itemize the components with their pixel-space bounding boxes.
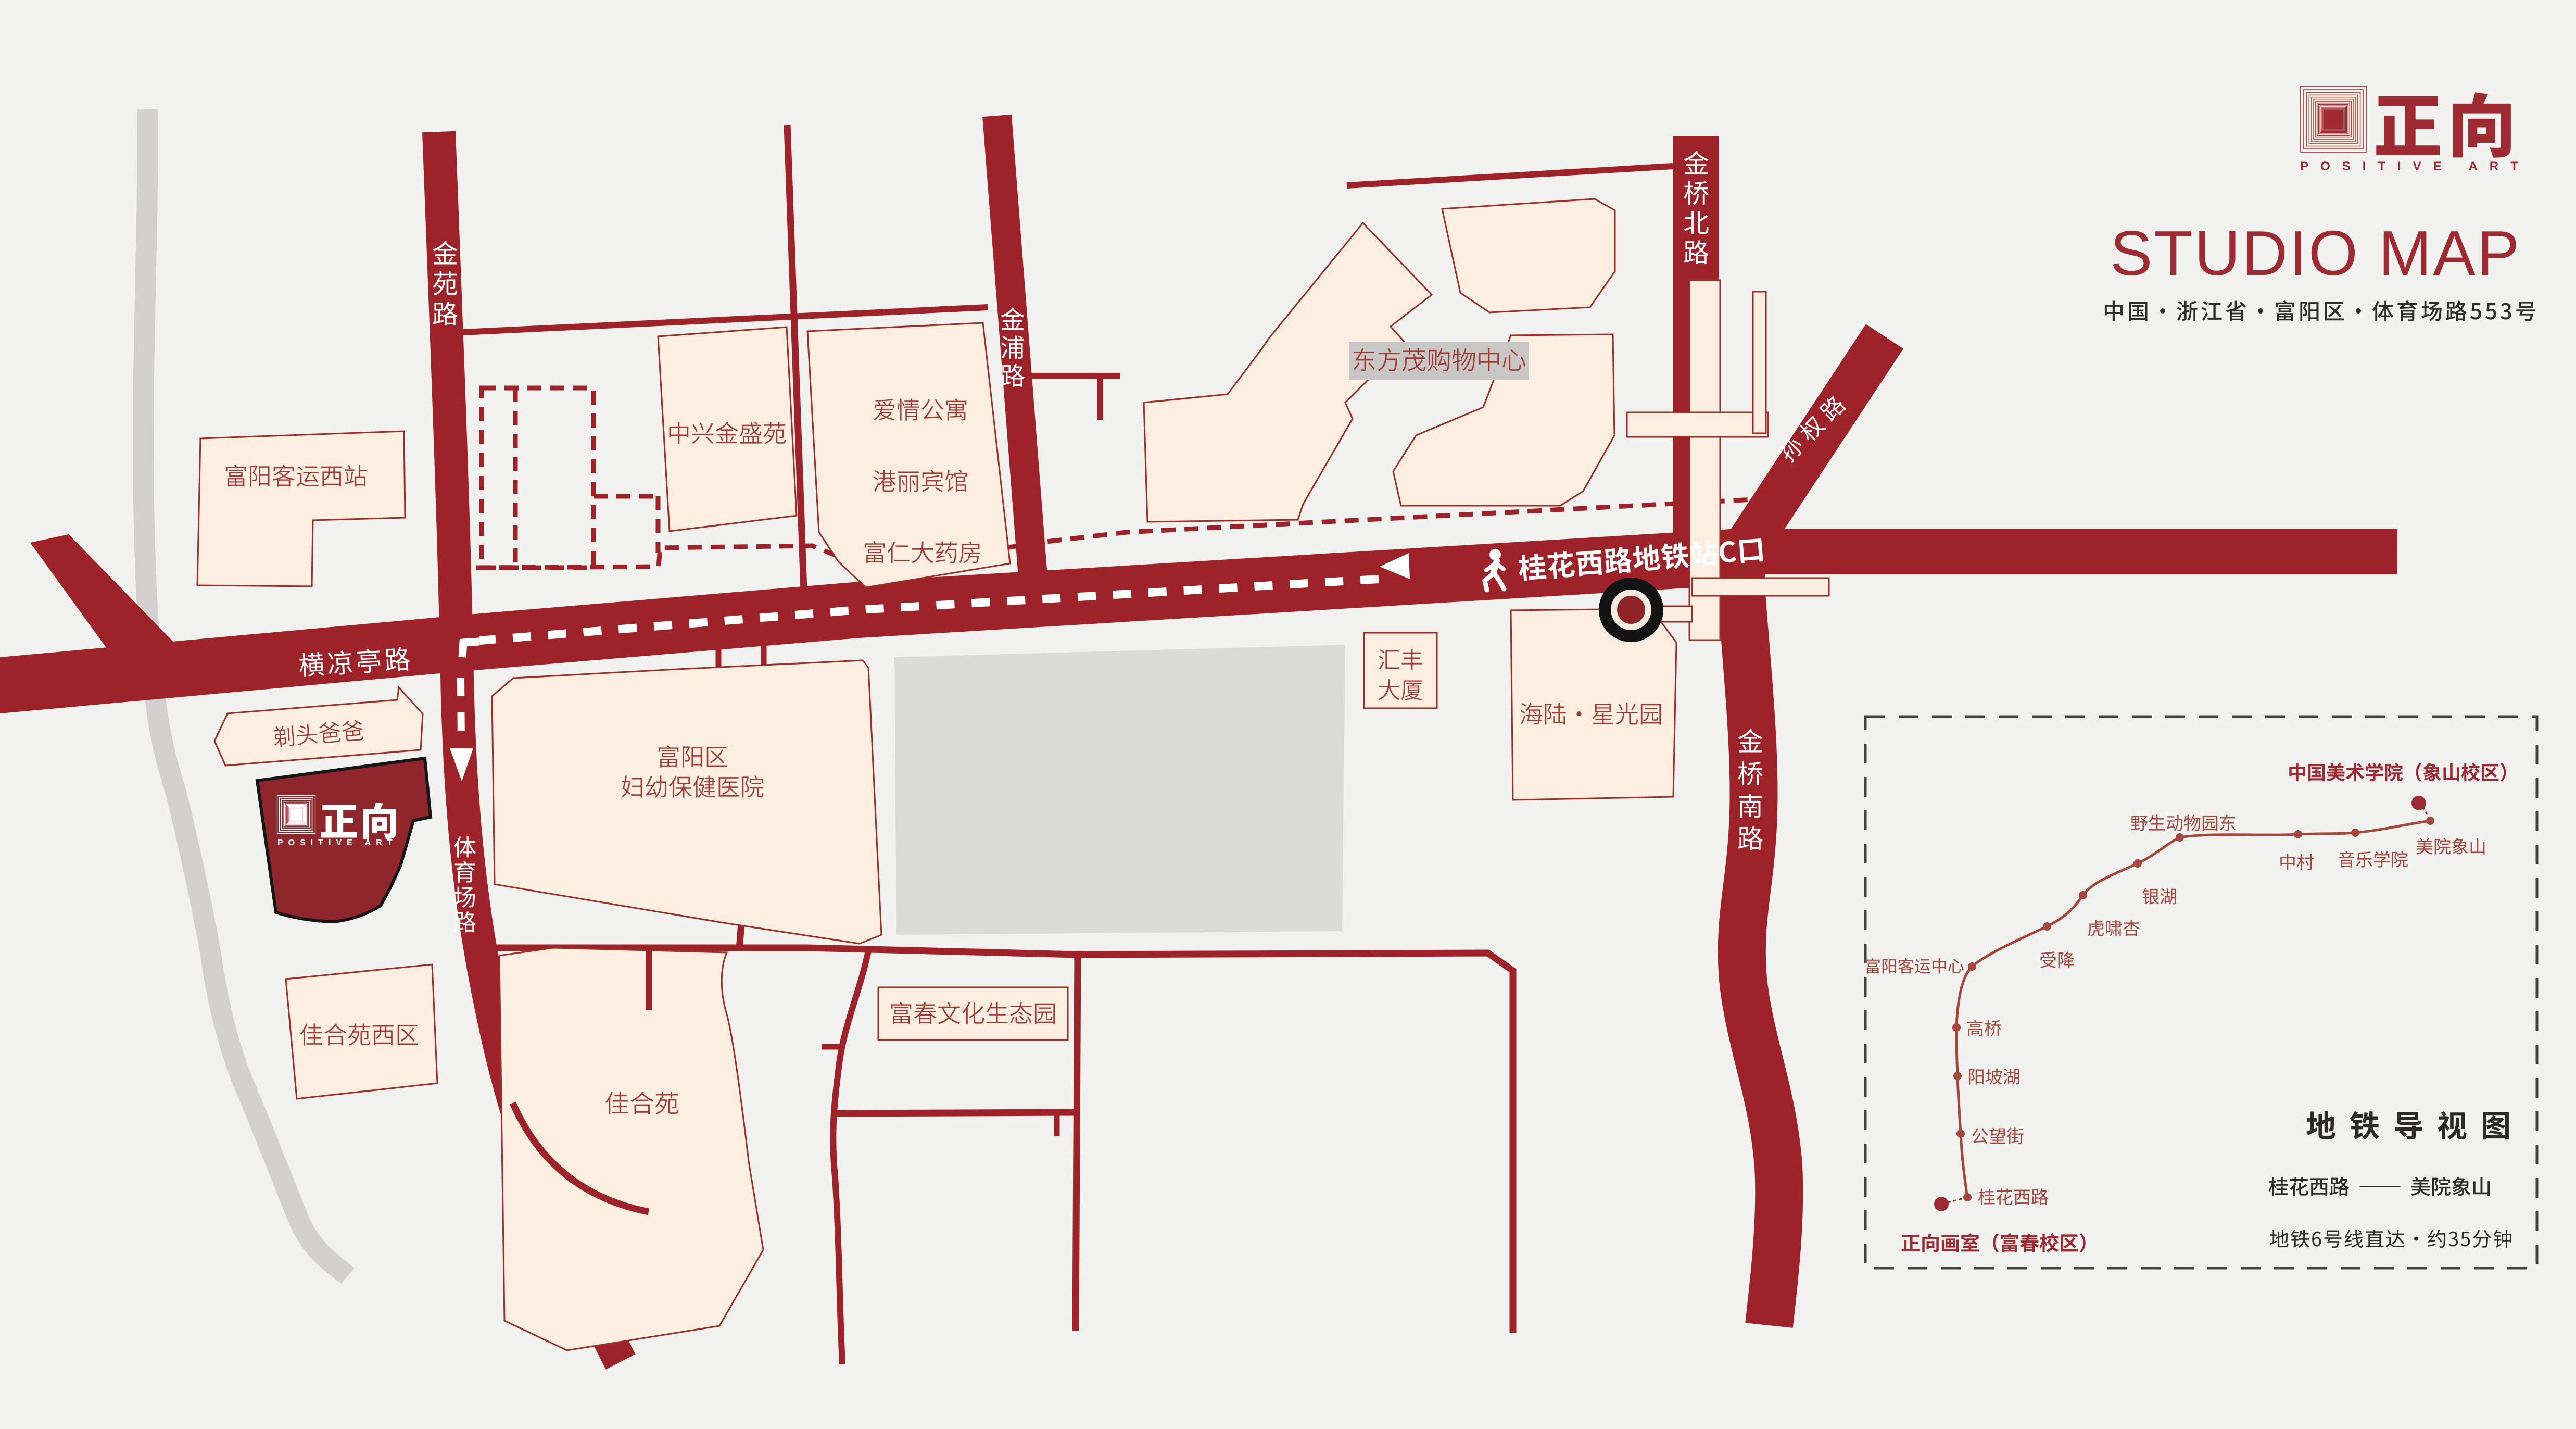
- svg-text:STUDIO MAP: STUDIO MAP: [2110, 218, 2521, 289]
- svg-text:POSITIVE ART: POSITIVE ART: [2300, 159, 2530, 173]
- svg-text:POSITIVE ART: POSITIVE ART: [277, 838, 398, 847]
